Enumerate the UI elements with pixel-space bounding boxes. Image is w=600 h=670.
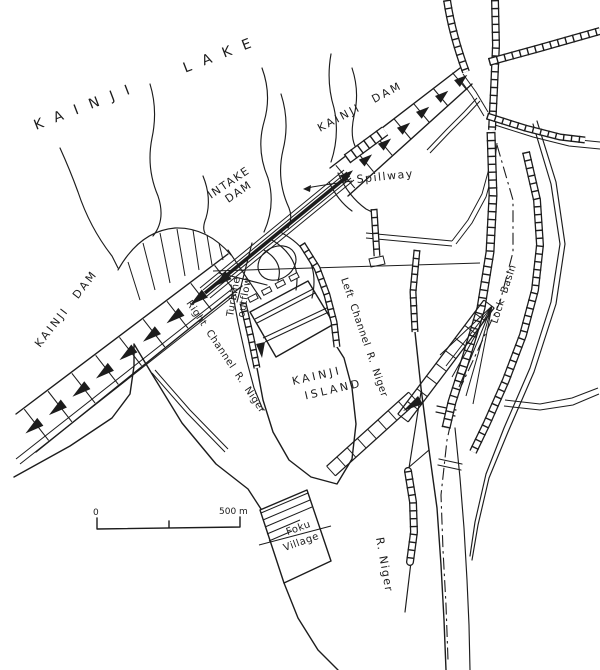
label-foku-village: Foku Village bbox=[277, 518, 320, 554]
label-lock-basin: Lock Basin bbox=[489, 263, 518, 325]
kainji-dam-map: 0 500 m KAINJI LAKE KAINJI DAM KAINJI DA… bbox=[0, 0, 600, 670]
switchyard-units bbox=[248, 273, 299, 303]
label-intake-dam: INTAKE DAM bbox=[205, 164, 259, 212]
transmission-line bbox=[213, 263, 480, 271]
village-area bbox=[259, 490, 331, 583]
label-r-niger: R. Niger bbox=[373, 536, 395, 593]
scale-max-label: 500 m bbox=[219, 507, 248, 517]
label-kainji-lake: KAINJI LAKE bbox=[32, 32, 265, 134]
map-figure: 0 500 m KAINJI LAKE KAINJI DAM KAINJI DA… bbox=[0, 0, 600, 670]
leader-arrowhead bbox=[303, 185, 311, 192]
map-labels: KAINJI LAKE KAINJI DAM KAINJI DAM INTAKE… bbox=[32, 32, 519, 594]
label-kainji-dam-west: KAINJI DAM bbox=[32, 268, 100, 350]
label-kainji-dam-east: KAINJI DAM bbox=[315, 79, 404, 135]
scale-bar: 0 500 m bbox=[93, 507, 248, 529]
label-spillway: Spillway bbox=[356, 167, 414, 186]
scale-zero-label: 0 bbox=[93, 508, 99, 518]
